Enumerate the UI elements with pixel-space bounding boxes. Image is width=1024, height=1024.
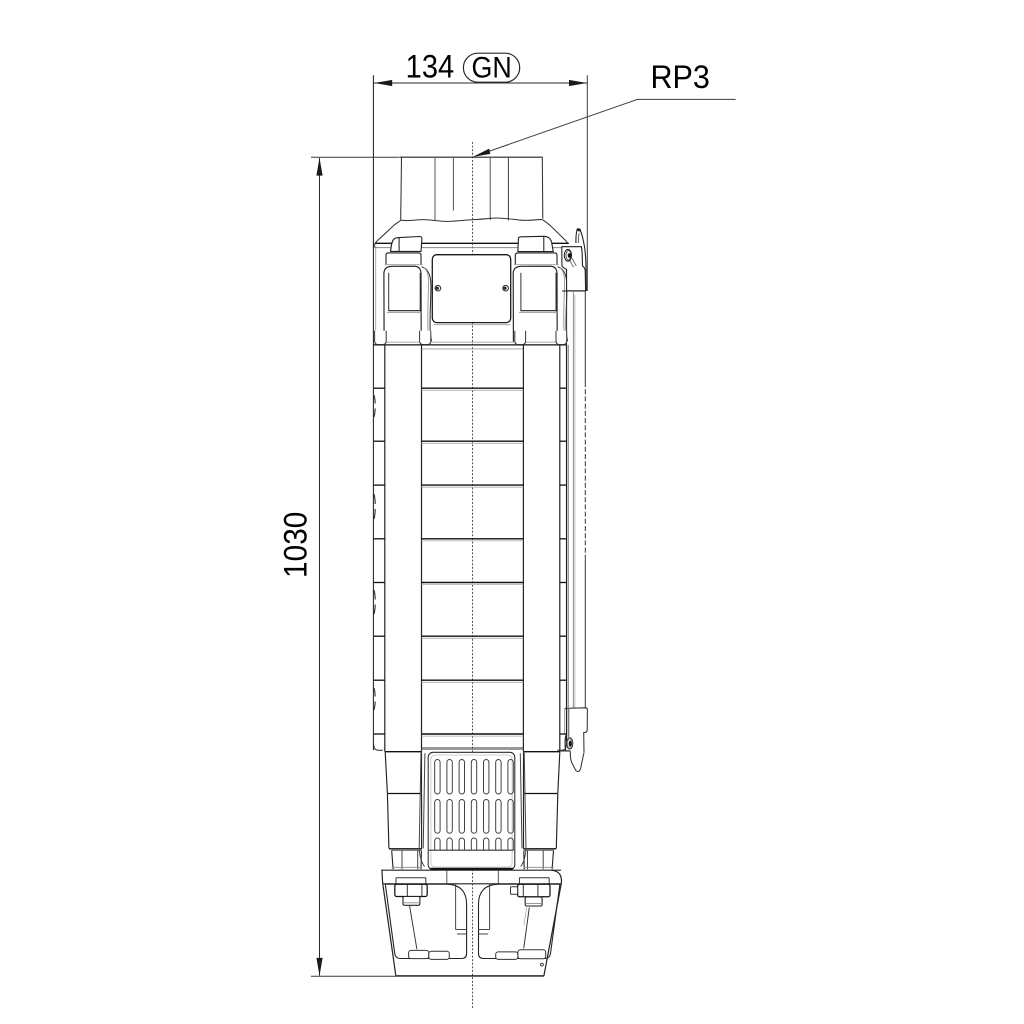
svg-text:134: 134 bbox=[406, 48, 454, 85]
svg-text:RP3: RP3 bbox=[650, 58, 709, 95]
svg-text:1030: 1030 bbox=[277, 512, 313, 578]
svg-text:GN: GN bbox=[471, 50, 511, 83]
